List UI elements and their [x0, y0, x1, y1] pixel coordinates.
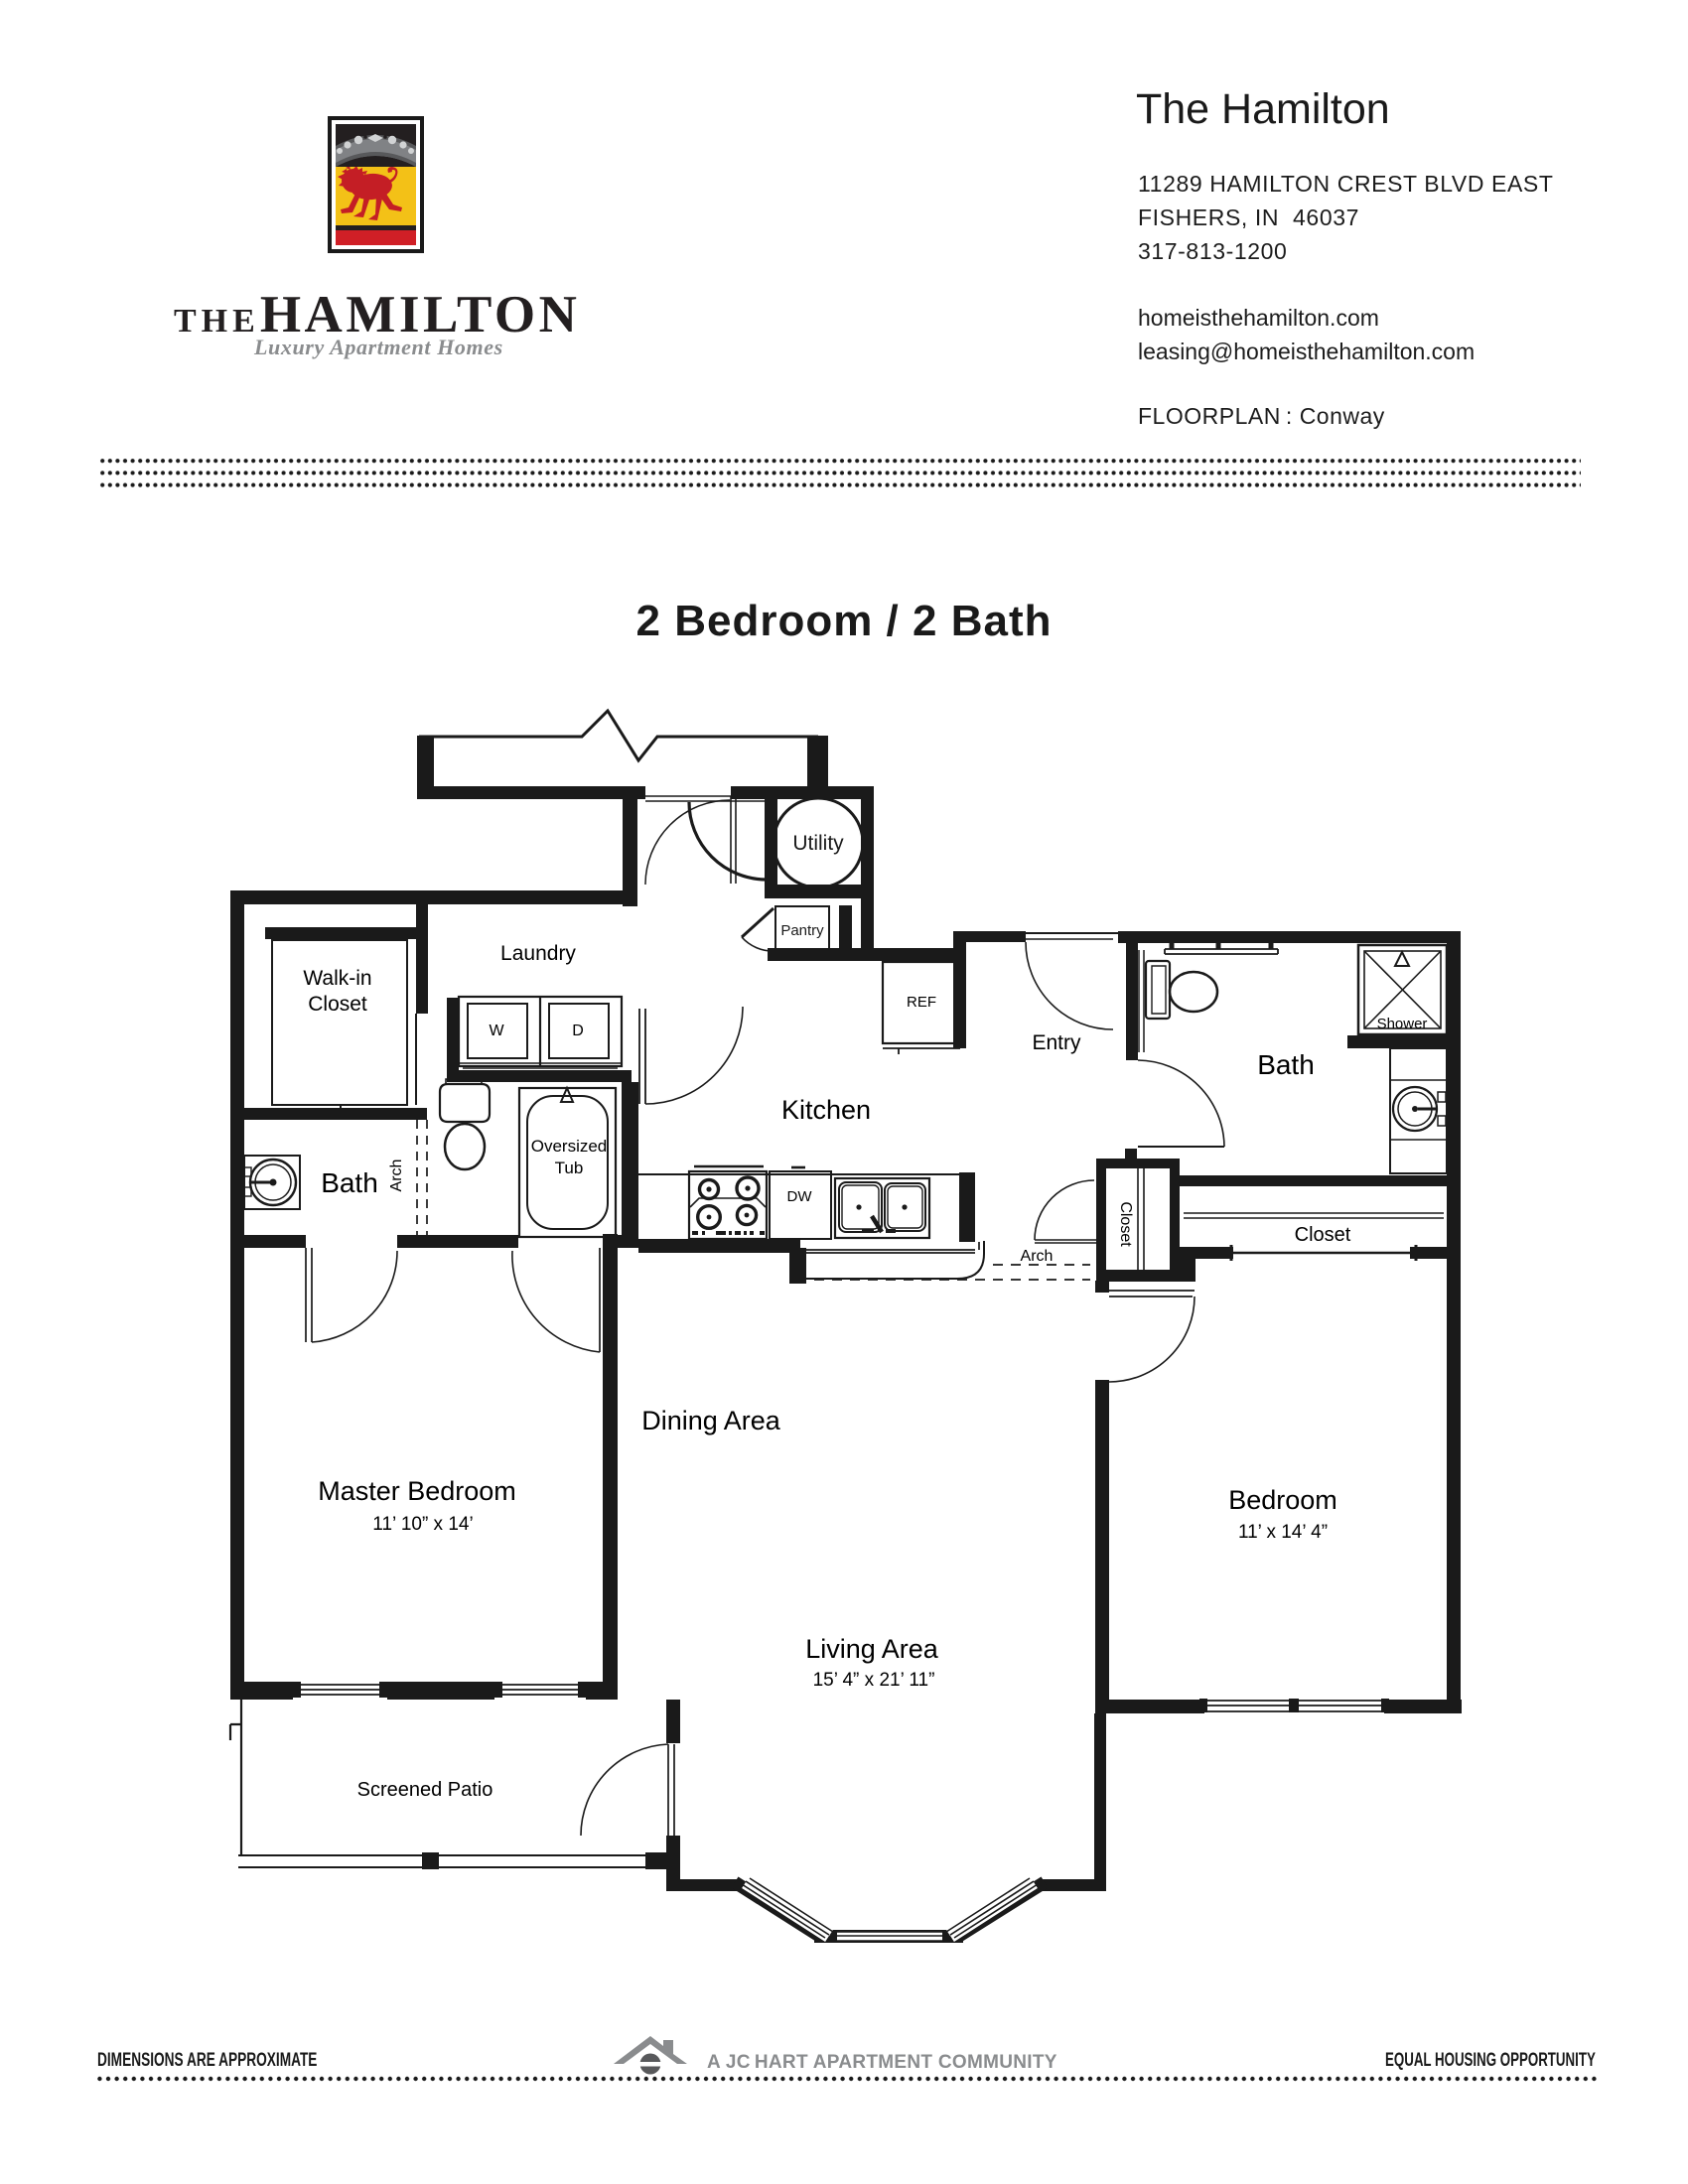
- svg-text:DW: DW: [787, 1188, 813, 1205]
- svg-text:Master Bedroom: Master Bedroom: [318, 1476, 516, 1506]
- svg-text:Closet: Closet: [1117, 1201, 1134, 1247]
- svg-text:Walk-in: Walk-in: [303, 967, 371, 990]
- svg-text:Closet: Closet: [308, 993, 367, 1016]
- svg-text:Bath: Bath: [1257, 1049, 1315, 1080]
- svg-text:Utility: Utility: [792, 832, 844, 855]
- svg-text:D: D: [572, 1023, 584, 1039]
- svg-text:Entry: Entry: [1032, 1031, 1081, 1054]
- svg-text:Oversized: Oversized: [531, 1137, 608, 1156]
- svg-text:Laundry: Laundry: [500, 942, 576, 965]
- svg-text:Bedroom: Bedroom: [1228, 1485, 1337, 1515]
- svg-text:Kitchen: Kitchen: [781, 1095, 871, 1125]
- svg-text:Dining Area: Dining Area: [641, 1406, 781, 1435]
- svg-text:Living Area: Living Area: [805, 1634, 939, 1664]
- svg-text:Bath: Bath: [321, 1167, 378, 1198]
- svg-text:11’ 10” x 14’: 11’ 10” x 14’: [372, 1514, 473, 1535]
- svg-text:Screened Patio: Screened Patio: [357, 1779, 493, 1801]
- svg-text:Closet: Closet: [1295, 1224, 1351, 1246]
- svg-text:REF: REF: [907, 994, 936, 1011]
- svg-text:Arch: Arch: [388, 1160, 405, 1192]
- svg-text:Shower: Shower: [1377, 1016, 1428, 1032]
- svg-text:Arch: Arch: [1021, 1248, 1054, 1265]
- svg-text:Pantry: Pantry: [780, 922, 824, 939]
- svg-text:W: W: [489, 1023, 504, 1039]
- svg-text:15’ 4” x 21’ 11”: 15’ 4” x 21’ 11”: [813, 1670, 935, 1691]
- svg-text:Tub: Tub: [555, 1159, 584, 1177]
- svg-text:11’ x 14’ 4”: 11’ x 14’ 4”: [1238, 1522, 1328, 1543]
